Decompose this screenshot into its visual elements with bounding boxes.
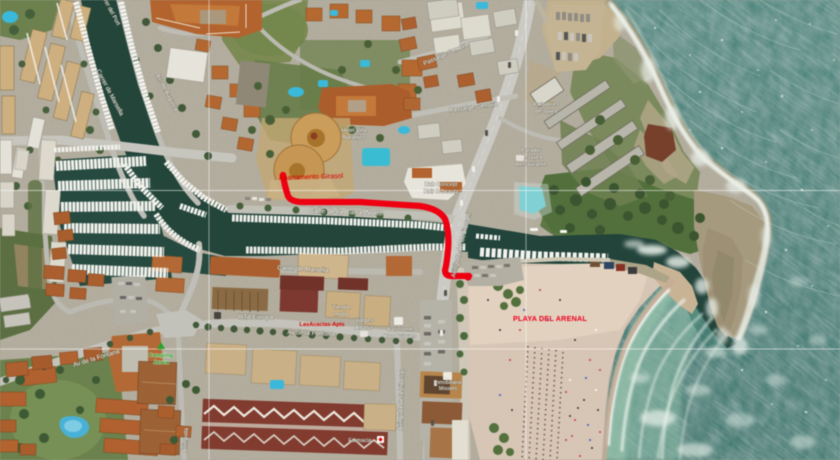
svg-text:Paradores: Paradores xyxy=(533,102,559,108)
svg-text:Albatur: Albatur xyxy=(355,325,373,331)
svg-text:PLAYA DEL ARENAL: PLAYA DEL ARENAL xyxy=(513,314,587,323)
svg-text:Viatges: Viatges xyxy=(355,318,374,324)
svg-text:Hotel Villa: Hotel Villa xyxy=(341,128,367,134)
svg-text:Hub Concept: Hub Concept xyxy=(425,182,458,188)
svg-text:Naranjos: Naranjos xyxy=(343,135,366,141)
svg-text:Mouses: Mouses xyxy=(439,386,458,392)
svg-text:Hair & Beauty: Hair & Beauty xyxy=(424,189,459,195)
svg-text:Farmacia: Farmacia xyxy=(348,438,372,444)
svg-text:Javea: Javea xyxy=(153,360,169,366)
svg-text:moda: moda xyxy=(334,312,349,318)
svg-text:Ban Buigues: Ban Buigues xyxy=(384,334,416,340)
svg-text:Camping: Camping xyxy=(149,353,174,359)
svg-text:LasAcacias-Apts: LasAcacias-Apts xyxy=(299,322,344,328)
svg-text:Parador: Parador xyxy=(521,148,541,154)
svg-text:Tienda: Tienda xyxy=(333,305,351,311)
svg-text:Bartolome: Bartolome xyxy=(387,327,413,333)
svg-text:Restaurante: Restaurante xyxy=(516,162,546,168)
svg-text:de Javea: de Javea xyxy=(535,109,559,115)
svg-text:RTA Europa: RTA Europa xyxy=(239,314,274,321)
